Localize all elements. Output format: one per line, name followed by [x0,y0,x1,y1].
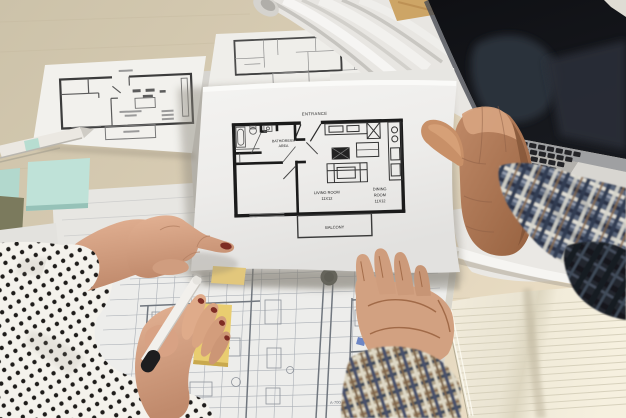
svg-text:11X12: 11X12 [374,198,385,203]
svg-text:BATH/DRESS: BATH/DRESS [272,139,295,144]
svg-text:ENTRANCE: ENTRANCE [302,111,328,117]
svg-text:LIVING ROOM: LIVING ROOM [314,189,340,195]
svg-text:11X12: 11X12 [321,196,332,201]
svg-text:AREA: AREA [279,144,289,148]
svg-text:A-700: A-700 [330,400,342,405]
svg-text:BALCONY: BALCONY [325,224,345,230]
svg-text:ROOM: ROOM [374,192,386,197]
svg-text:DINING: DINING [373,186,387,191]
